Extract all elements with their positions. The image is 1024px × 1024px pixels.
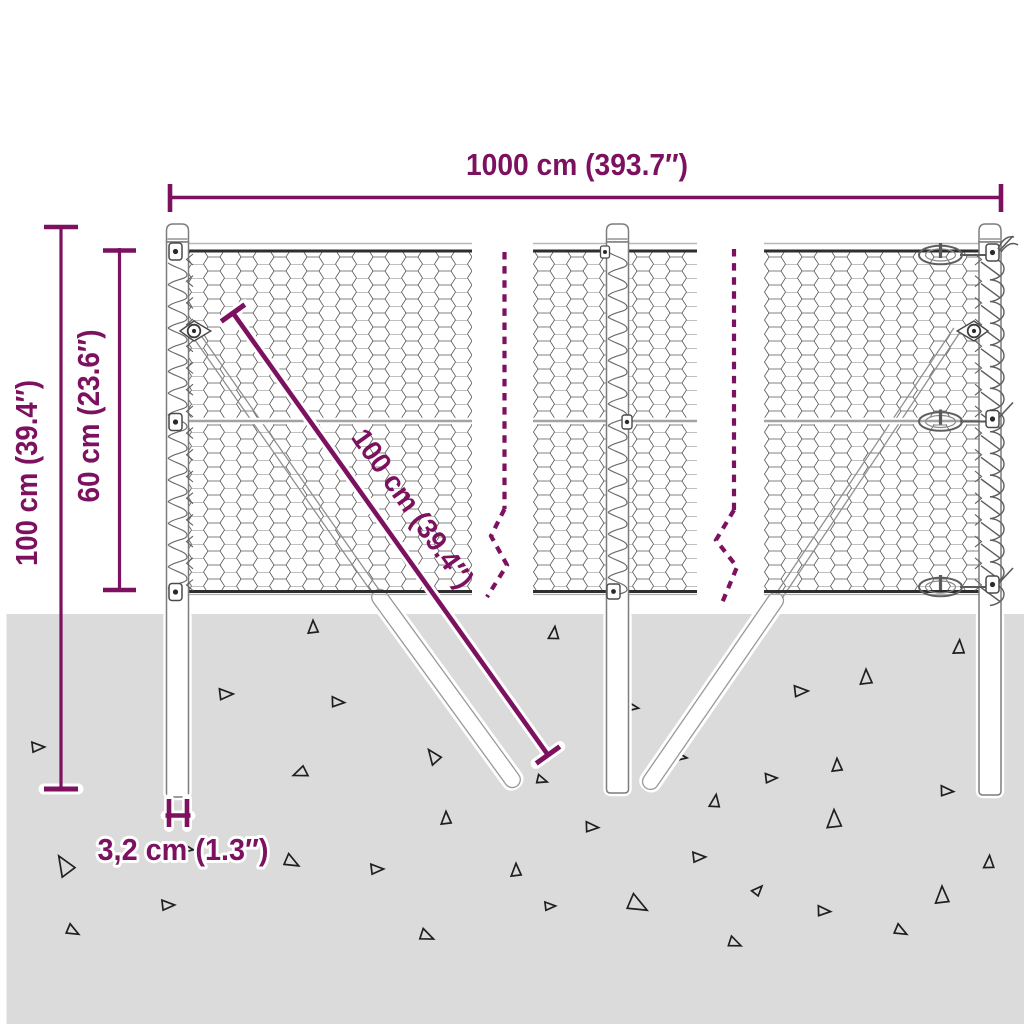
svg-text:100 cm (39.4″): 100 cm (39.4″)	[9, 380, 44, 566]
svg-text:3,2 cm (1.3″): 3,2 cm (1.3″)	[98, 832, 269, 867]
svg-text:60 cm (23.6″): 60 cm (23.6″)	[71, 330, 106, 503]
svg-text:1000 cm (393.7″): 1000 cm (393.7″)	[466, 147, 688, 182]
